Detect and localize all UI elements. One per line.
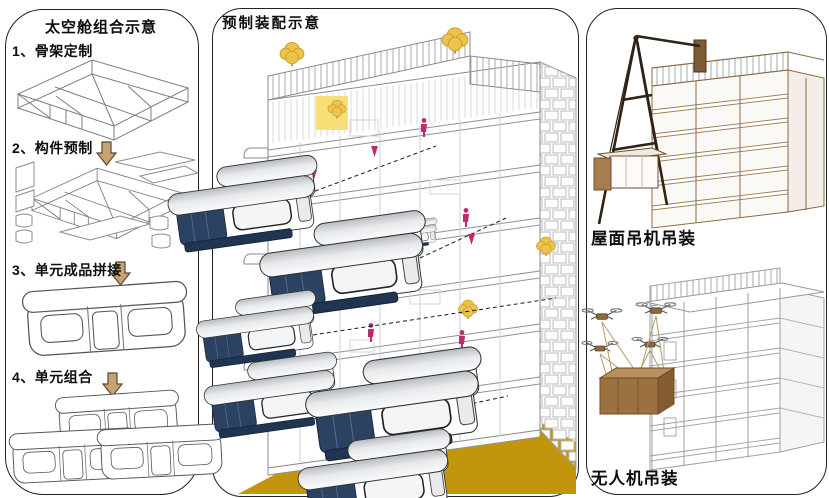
middle-panel-title: 预制装配示意 — [222, 16, 321, 33]
step-1-label: 1、骨架定制 — [12, 43, 93, 59]
prefab-assembly-panel — [212, 8, 579, 497]
step-4-label: 4、单元组合 — [12, 369, 93, 385]
modular-construction-infographic: 太空舱组合示意 1、骨架定制 2、构件预制 3、单元成品拼接 4、单元组合 预制… — [0, 0, 829, 498]
step-2-label: 2、构件预制 — [12, 140, 93, 156]
drone-caption: 无人机吊装 — [591, 470, 679, 489]
roof-crane-caption: 屋面吊机吊装 — [591, 230, 696, 249]
hoisting-methods-panel — [586, 8, 827, 495]
left-panel-title: 太空舱组合示意 — [5, 19, 197, 36]
step-3-label: 3、单元成品拼接 — [12, 262, 122, 278]
capsule-assembly-panel — [5, 9, 199, 495]
